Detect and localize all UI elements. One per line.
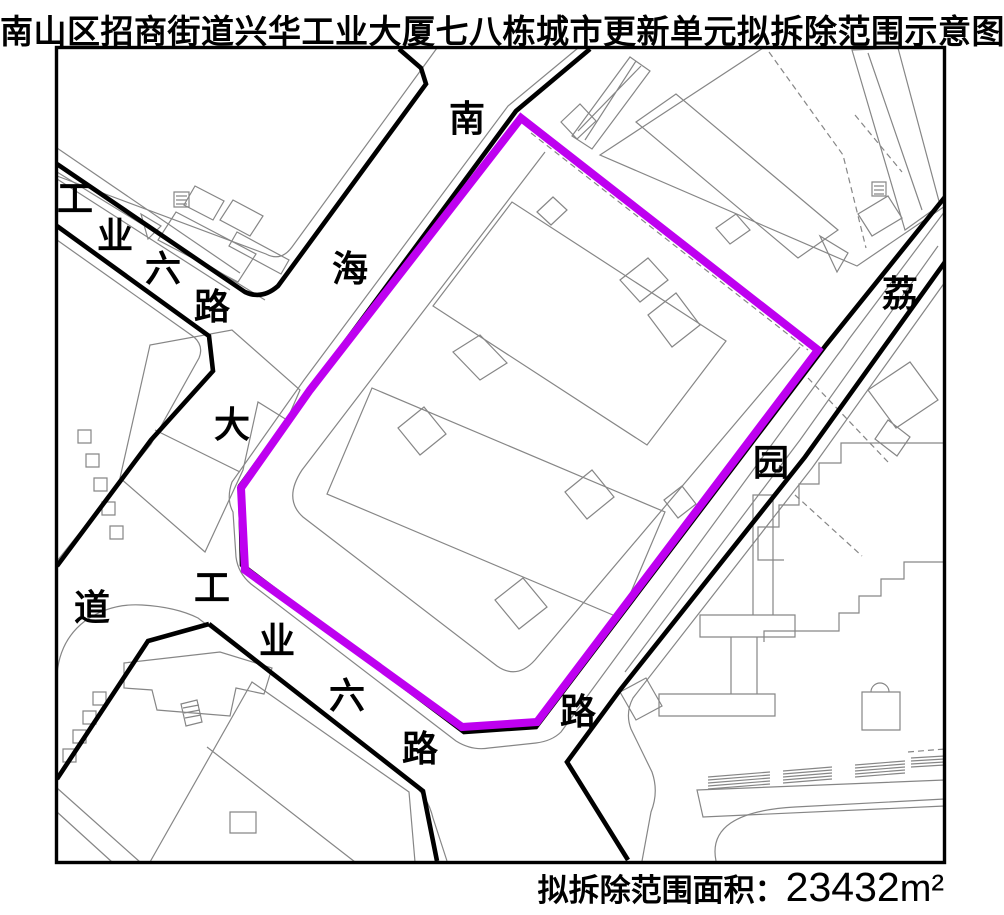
dashed-line xyxy=(855,115,902,172)
road-label-gongye-east-char: 路 xyxy=(402,728,439,769)
building-annex xyxy=(453,335,507,380)
map-canvas: 南 海 大 道 工 业 六 路 工 业 六 路 荔 园 路 xyxy=(0,0,1004,910)
building-annex xyxy=(620,258,668,302)
bleachers xyxy=(708,756,945,789)
road-edge-liyuan-se xyxy=(567,262,945,860)
road-label-nanhai-char: 海 xyxy=(332,248,368,289)
building-hatch xyxy=(872,182,886,196)
building-row xyxy=(63,692,106,762)
building xyxy=(862,683,900,730)
sidewalk-line xyxy=(57,605,447,861)
terrace-steps xyxy=(764,562,945,642)
demolition-boundary xyxy=(241,118,818,727)
road-label-gongye-west-char: 业 xyxy=(97,215,133,256)
building-xinghua-upper xyxy=(433,202,726,445)
parcel-line xyxy=(57,788,140,862)
sidewalk-line xyxy=(293,152,800,672)
road-edge-gongye-west-sw xyxy=(57,226,213,566)
road-label-nanhai-char: 南 xyxy=(449,98,485,139)
building xyxy=(220,200,263,236)
road-label-gongye-west-char: 六 xyxy=(145,248,181,289)
parcel-line xyxy=(600,48,945,266)
road-network xyxy=(57,49,945,861)
building xyxy=(561,104,596,139)
building xyxy=(697,780,945,817)
area-caption-value: 23432 xyxy=(786,864,900,911)
building xyxy=(858,196,902,236)
road-label-nanhai-char: 大 xyxy=(214,404,250,445)
road-label-liyuan-char: 荔 xyxy=(882,273,918,314)
road-label-nanhai-char: 道 xyxy=(74,587,110,628)
road-label-gongye-west-char: 工 xyxy=(57,178,93,219)
road-label-gongye-east-char: 工 xyxy=(194,567,230,608)
dashed-line xyxy=(769,52,866,248)
road-label-gongye-east-char: 业 xyxy=(259,620,295,661)
road-label-liyuan-char: 路 xyxy=(560,691,597,732)
map-border xyxy=(57,48,945,863)
road-edge-nanhai-nw xyxy=(57,49,426,295)
building-annex xyxy=(398,407,446,455)
dashed-line xyxy=(795,495,862,556)
area-caption-label: 拟拆除范围面积： xyxy=(538,865,786,910)
dashed-line xyxy=(808,378,888,462)
track-curve xyxy=(715,799,945,861)
building-annex xyxy=(565,470,614,519)
area-caption-unit: m² xyxy=(900,868,944,911)
building-truss xyxy=(572,57,650,149)
sidewalk-line xyxy=(229,48,945,749)
building xyxy=(184,186,224,220)
building xyxy=(868,362,938,456)
road-labels: 南 海 大 道 工 业 六 路 工 业 六 路 荔 园 路 xyxy=(57,98,918,769)
building-annex xyxy=(495,578,547,629)
road-label-liyuan-char: 园 xyxy=(753,442,789,483)
building-annex xyxy=(648,293,700,347)
building-xinghua-lower xyxy=(327,388,665,618)
parcel-linework xyxy=(57,48,945,862)
building xyxy=(820,236,848,272)
building xyxy=(229,232,289,274)
dashed-line xyxy=(908,749,945,752)
building xyxy=(150,682,415,862)
area-caption: 拟拆除范围面积： 23432 m² xyxy=(538,864,944,911)
road-label-gongye-west-char: 路 xyxy=(194,286,231,327)
road-edge-nanhai-south xyxy=(57,624,209,779)
road-label-gongye-east-char: 六 xyxy=(329,675,365,716)
map-container: 南 海 大 道 工 业 六 路 工 业 六 路 荔 园 路 xyxy=(0,0,1004,910)
building xyxy=(852,48,940,230)
